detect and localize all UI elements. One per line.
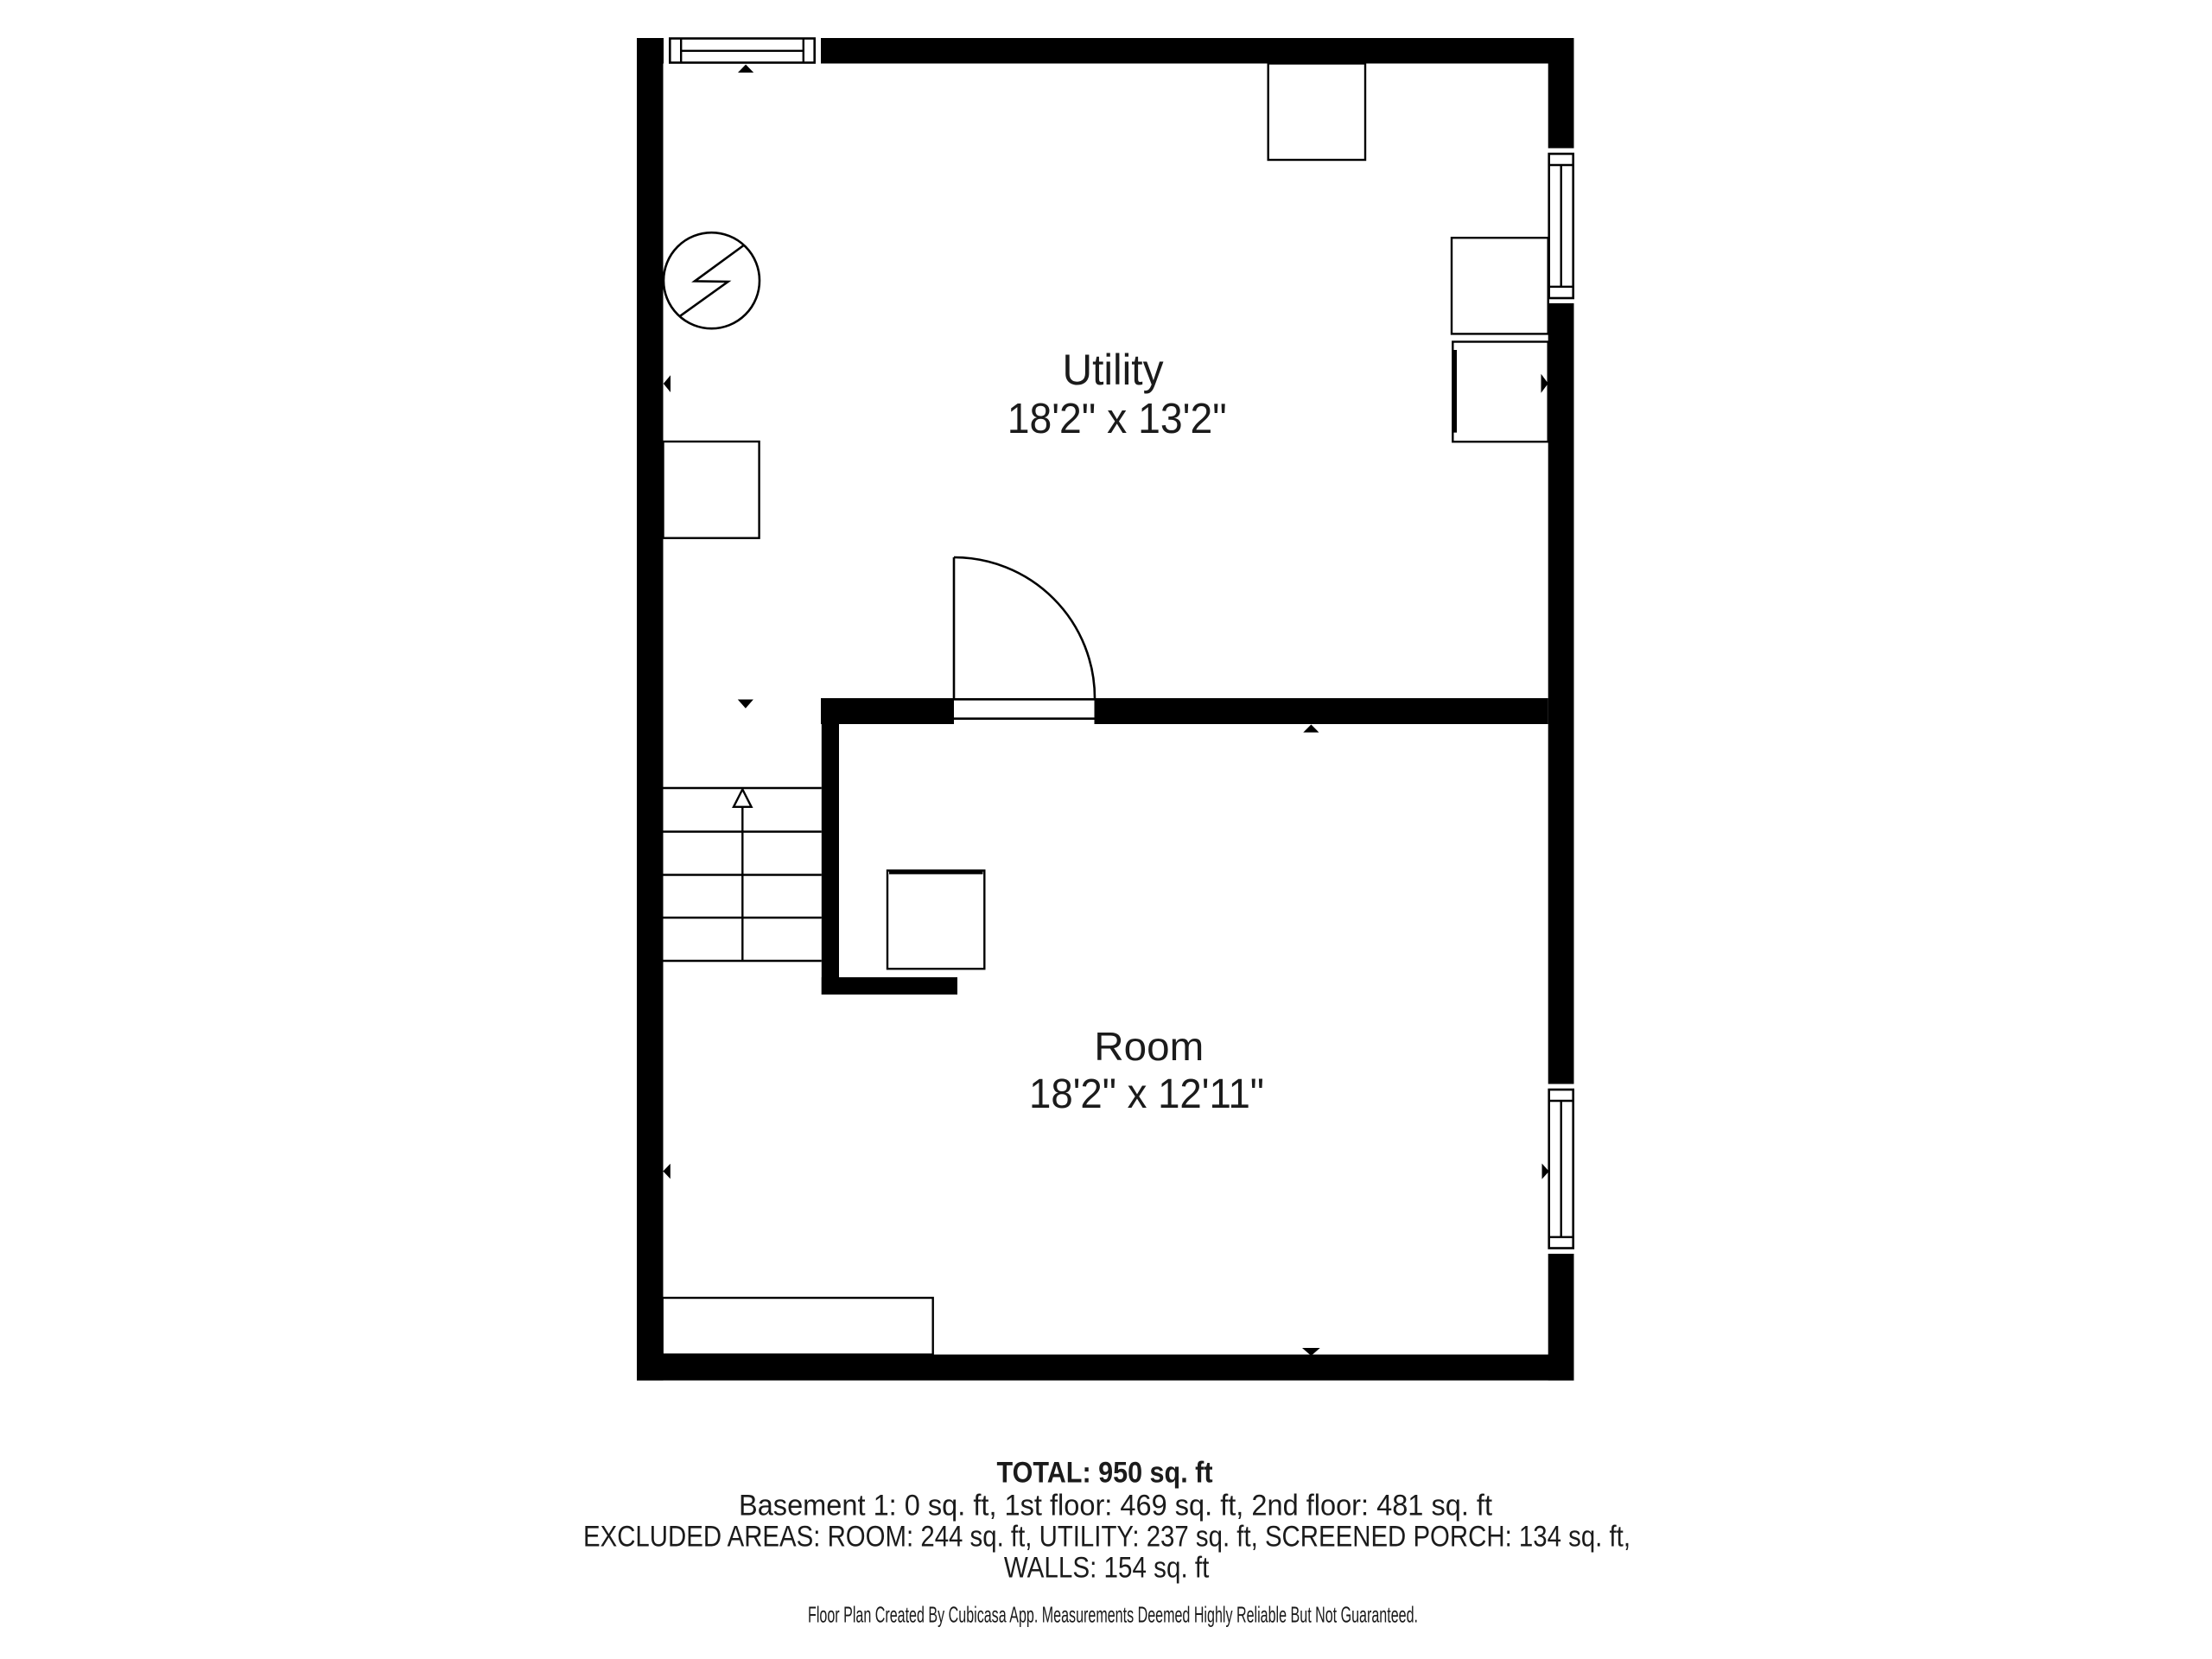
svg-text:Floor Plan Created By Cubicasa: Floor Plan Created By Cubicasa App. Meas… (808, 1602, 1418, 1628)
svg-text:Utility: Utility (1063, 346, 1164, 394)
svg-text:18'2" x 12'11": 18'2" x 12'11" (1029, 1071, 1264, 1117)
svg-text:Basement 1: 0 sq. ft, 1st floo: Basement 1: 0 sq. ft, 1st floor: 469 sq.… (739, 1490, 1492, 1522)
svg-text:EXCLUDED AREAS: ROOM: 244 sq.: EXCLUDED AREAS: ROOM: 244 sq. ft, UTILIT… (583, 1521, 1630, 1554)
svg-text:WALLS: 154 sq. ft: WALLS: 154 sq. ft (1004, 1552, 1210, 1585)
svg-text:Room: Room (1094, 1024, 1204, 1069)
svg-text:18'2" x 13'2": 18'2" x 13'2" (1007, 396, 1227, 442)
svg-text:TOTAL: 950 sq. ft: TOTAL: 950 sq. ft (997, 1457, 1213, 1490)
